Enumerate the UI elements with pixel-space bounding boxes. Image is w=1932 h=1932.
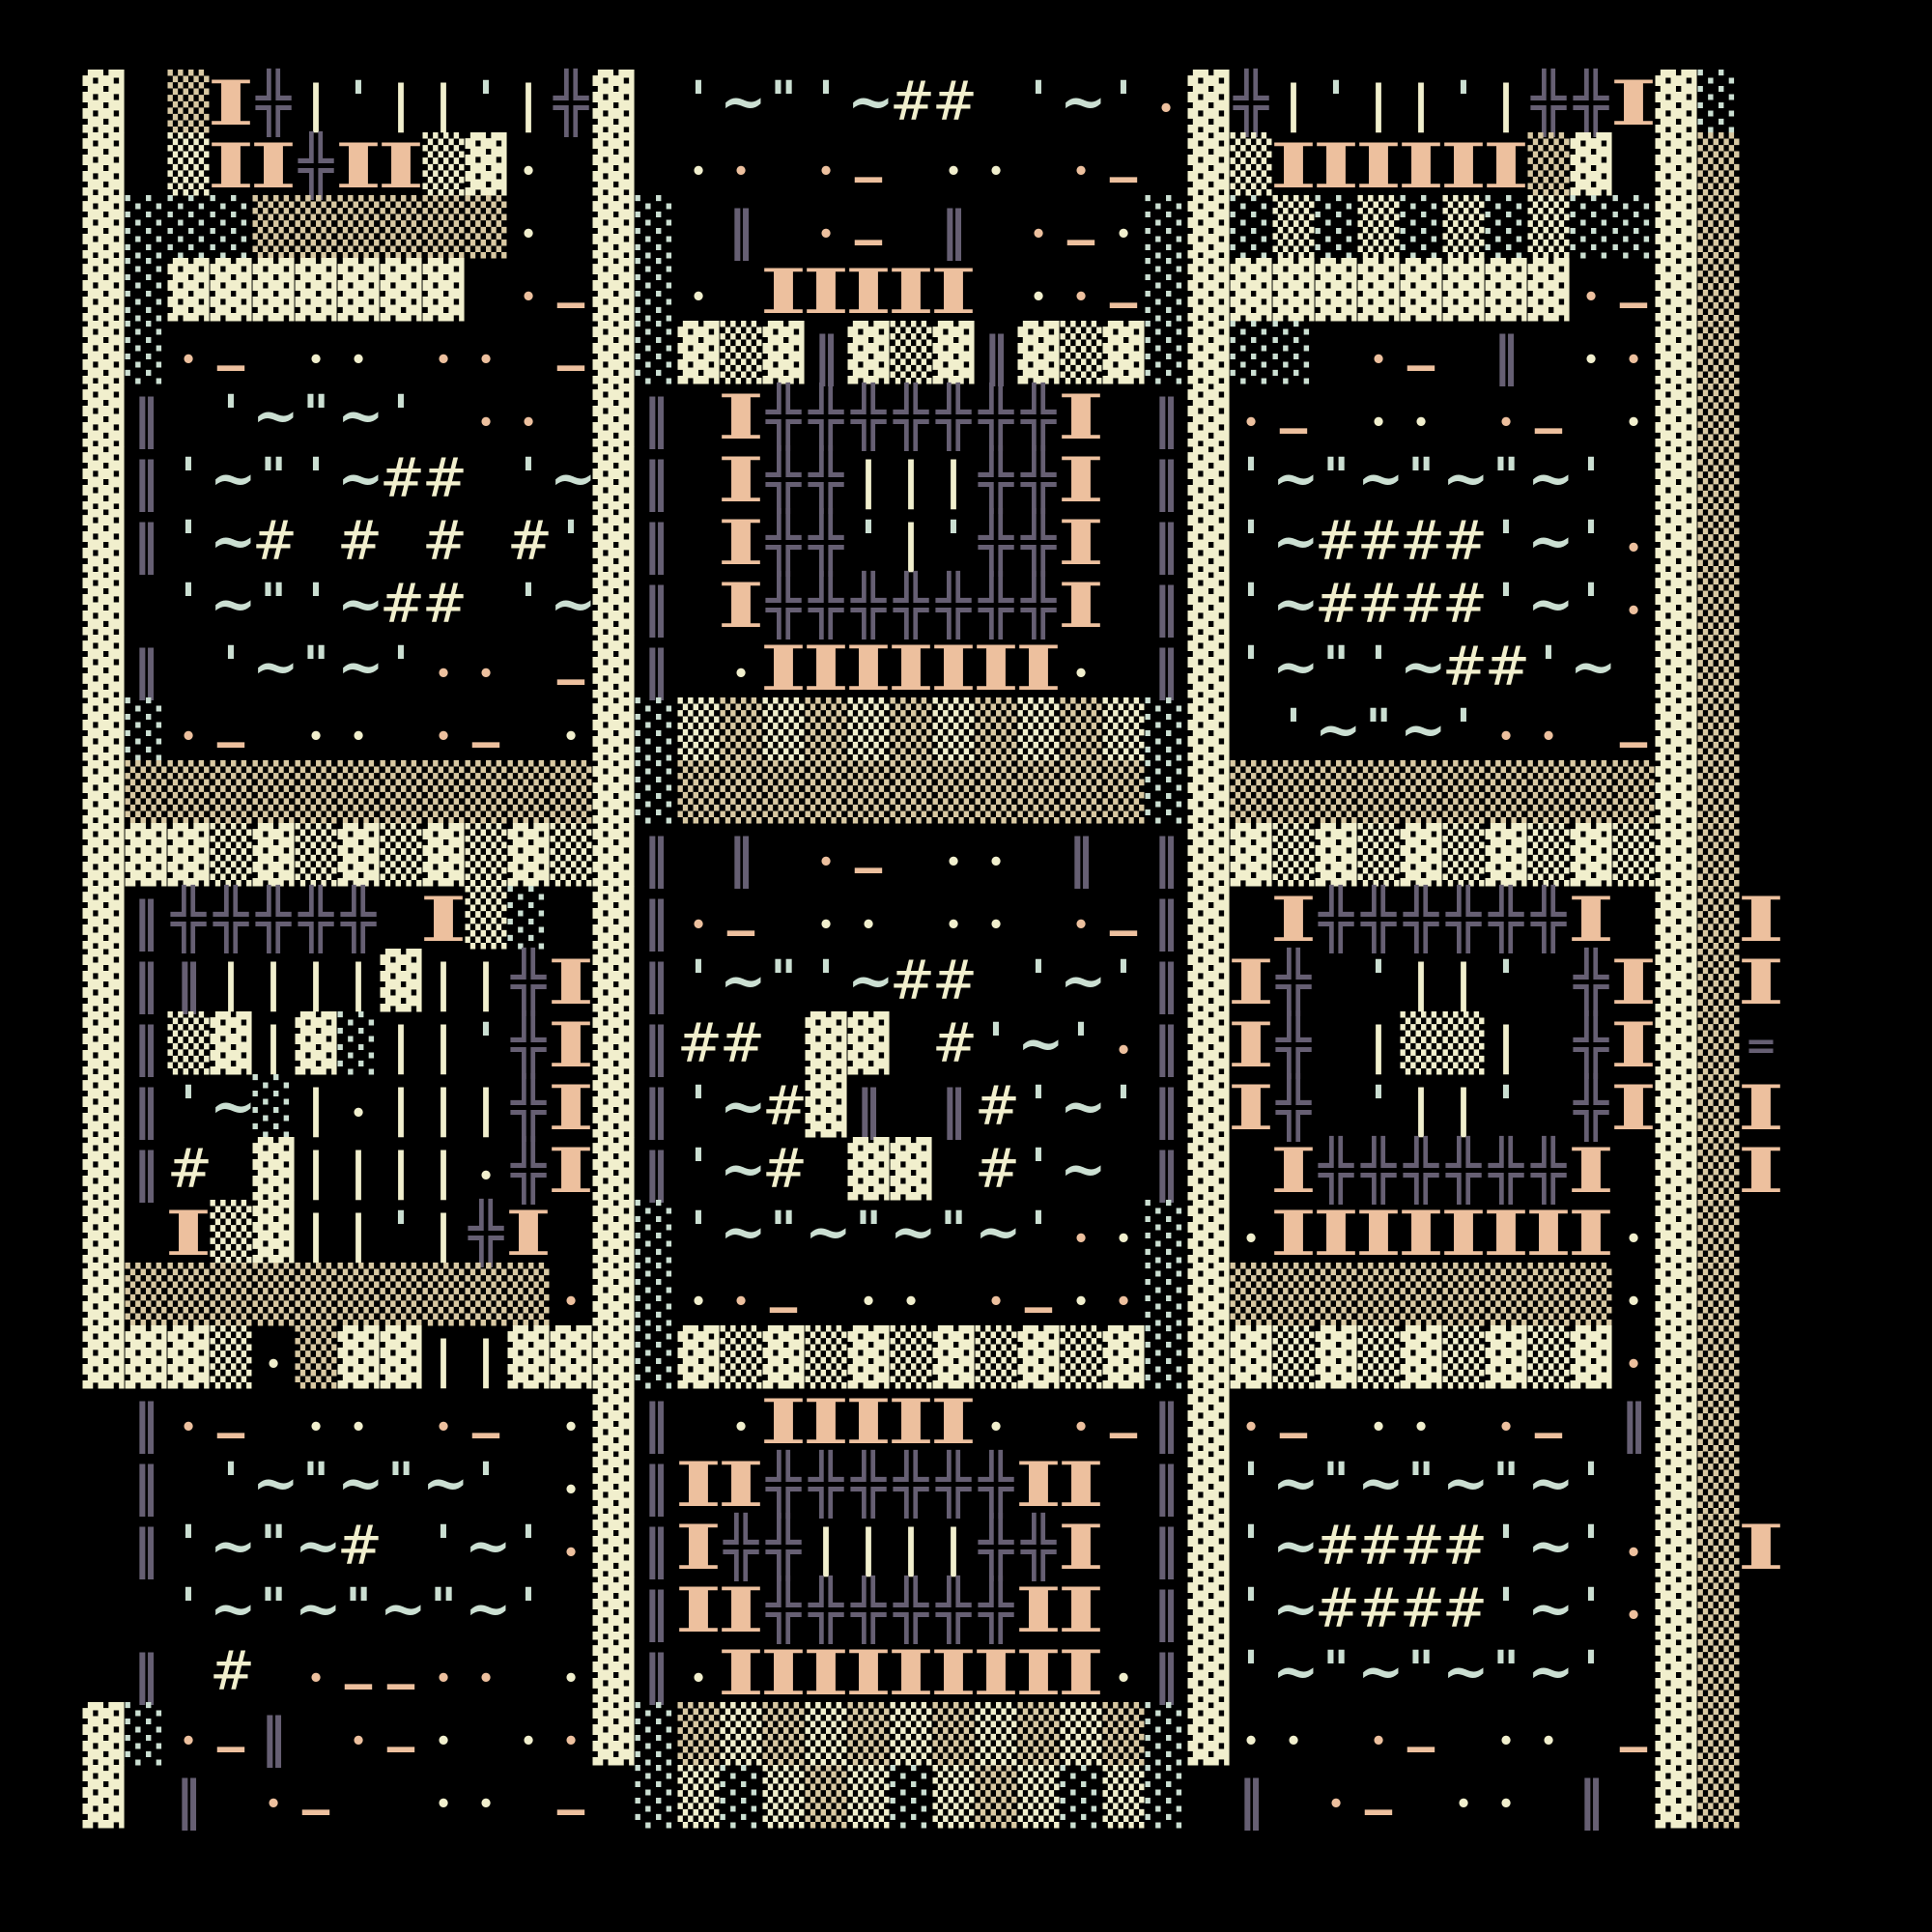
glyph-cell: ': [167, 575, 210, 638]
glyph-cell: ~: [1272, 1454, 1315, 1517]
glyph-cell: [1527, 1768, 1570, 1831]
glyph-cell: ": [762, 72, 805, 135]
glyph-cell: |: [252, 952, 295, 1014]
glyph-cell: ▓: [847, 1014, 890, 1077]
glyph-cell: ░: [1145, 324, 1187, 386]
glyph-cell: [82, 1517, 125, 1579]
glyph-cell: ░: [337, 1014, 380, 1077]
glyph-cell: ▒: [1357, 826, 1400, 889]
glyph-cell: [1740, 72, 1782, 135]
glyph-cell: ▓: [592, 1642, 635, 1705]
glyph-cell: ▒: [167, 763, 210, 826]
glyph-cell: [762, 1014, 805, 1077]
grid-row: ▓▒▒▒▒▒▒▒▒▒▒•▓░••▁•••▁••░▓▒▒▒▒▒▒▒▒▒•▓▒: [82, 1265, 1811, 1328]
glyph-cell: ▒: [1697, 575, 1740, 638]
glyph-cell: ": [1315, 1642, 1357, 1705]
glyph-cell: I: [494, 1203, 564, 1265]
glyph-cell: •: [1357, 1391, 1400, 1454]
glyph-cell: ‖: [1230, 1768, 1272, 1831]
glyph-cell: #: [507, 512, 550, 575]
glyph-cell: ▒: [720, 763, 762, 826]
glyph-cell: I: [154, 1203, 224, 1265]
glyph-cell: ': [847, 512, 890, 575]
glyph-cell: ╬: [252, 889, 295, 952]
glyph-cell: ▓: [1272, 261, 1315, 324]
glyph-cell: [1612, 1642, 1655, 1705]
glyph-cell: ╬: [847, 1454, 890, 1517]
glyph-cell: ▒: [1697, 198, 1740, 261]
glyph-cell: ▒: [1697, 449, 1740, 512]
glyph-cell: ▒: [507, 763, 550, 826]
glyph-cell: ▒: [295, 1328, 337, 1391]
glyph-cell: •: [1527, 1705, 1570, 1768]
glyph-cell: [1017, 889, 1060, 952]
glyph-cell: ~: [1272, 512, 1315, 575]
glyph-cell: •: [422, 1768, 465, 1831]
glyph-cell: ': [1570, 1579, 1612, 1642]
glyph-cell: •: [805, 135, 847, 198]
glyph-cell: ▒: [422, 763, 465, 826]
glyph-cell: •: [1060, 1265, 1102, 1328]
glyph-cell: ▁: [1612, 261, 1655, 324]
glyph-cell: #: [1442, 638, 1485, 700]
glyph-cell: ‖: [125, 889, 167, 952]
glyph-cell: •: [1612, 575, 1655, 638]
glyph-cell: ░: [252, 1077, 295, 1140]
glyph-cell: ‖: [1060, 826, 1102, 889]
glyph-cell: ~: [1272, 638, 1315, 700]
glyph-cell: ▁: [847, 135, 890, 198]
glyph-cell: ▓: [592, 700, 635, 763]
glyph-cell: ▓: [82, 700, 125, 763]
glyph-cell: ~: [550, 449, 592, 512]
glyph-cell: [1740, 1705, 1782, 1768]
glyph-cell: ▒: [1485, 763, 1527, 826]
glyph-cell: ▓: [167, 1328, 210, 1391]
glyph-cell: ▓: [167, 261, 210, 324]
glyph-cell: ~: [1527, 512, 1570, 575]
glyph-cell: =: [1740, 1014, 1782, 1077]
glyph-cell: I: [1259, 1140, 1329, 1203]
glyph-cell: [1740, 1768, 1782, 1831]
glyph-cell: [507, 1768, 550, 1831]
glyph-cell: ▒: [1017, 1705, 1060, 1768]
glyph-cell: ~: [1527, 575, 1570, 638]
glyph-cell: [932, 1140, 975, 1203]
glyph-cell: ▓: [1187, 324, 1230, 386]
glyph-cell: ▒: [1527, 1328, 1570, 1391]
glyph-cell: I: [1046, 1579, 1117, 1642]
glyph-cell: •: [1060, 135, 1102, 198]
glyph-cell: ▓: [1187, 1328, 1230, 1391]
glyph-cell: ▓: [1655, 1579, 1697, 1642]
glyph-cell: ▓: [82, 763, 125, 826]
glyph-cell: ▒: [720, 1328, 762, 1391]
glyph-cell: ▒: [1570, 1265, 1612, 1328]
glyph-cell: ▓: [592, 889, 635, 952]
glyph-cell: ': [1102, 952, 1145, 1014]
glyph-cell: I: [1599, 72, 1669, 135]
glyph-cell: I: [1599, 1077, 1669, 1140]
glyph-cell: |: [465, 952, 507, 1014]
glyph-cell: ~: [210, 1077, 252, 1140]
glyph-cell: ▓: [592, 826, 635, 889]
glyph-cell: ▓: [1655, 386, 1697, 449]
glyph-cell: ▒: [1697, 1391, 1740, 1454]
glyph-cell: ‖: [932, 1077, 975, 1140]
glyph-cell: ▒: [1612, 763, 1655, 826]
glyph-cell: I: [1004, 638, 1074, 700]
glyph-cell: ▁: [380, 1705, 422, 1768]
glyph-cell: ‖: [1145, 1077, 1187, 1140]
glyph-cell: [890, 826, 932, 889]
glyph-cell: ▓: [125, 1328, 167, 1391]
glyph-cell: ░: [1612, 198, 1655, 261]
glyph-cell: [1740, 1265, 1782, 1328]
glyph-cell: ░: [890, 1768, 932, 1831]
glyph-cell: •: [1485, 386, 1527, 449]
glyph-cell: [337, 1768, 380, 1831]
glyph-cell: [890, 1077, 932, 1140]
glyph-cell: •: [1400, 1391, 1442, 1454]
glyph-cell: ▒: [465, 198, 507, 261]
glyph-cell: I: [706, 386, 777, 449]
glyph-cell: •: [1485, 1391, 1527, 1454]
glyph-cell: ▓: [1655, 1454, 1697, 1517]
glyph-cell: ░: [125, 1705, 167, 1768]
glyph-cell: #: [1400, 575, 1442, 638]
glyph-cell: |: [210, 952, 252, 1014]
glyph-cell: ░: [1315, 198, 1357, 261]
glyph-cell: ╬: [762, 1517, 805, 1579]
glyph-cell: ~: [1272, 575, 1315, 638]
glyph-cell: I: [1556, 1203, 1627, 1265]
glyph-cell: [82, 1391, 125, 1454]
glyph-cell: ▓: [295, 1014, 337, 1077]
glyph-cell: ‖: [1145, 1391, 1187, 1454]
glyph-cell: ~: [550, 575, 592, 638]
glyph-cell: •: [975, 135, 1017, 198]
glyph-cell: |: [1400, 952, 1442, 1014]
glyph-cell: ': [507, 1517, 550, 1579]
glyph-cell: #: [422, 449, 465, 512]
glyph-cell: [1570, 1705, 1612, 1768]
glyph-cell: •: [1612, 386, 1655, 449]
glyph-cell: #: [975, 1077, 1017, 1140]
glyph-cell: •: [422, 700, 465, 763]
glyph-cell: •: [1230, 386, 1272, 449]
glyph-cell: ▒: [1697, 261, 1740, 324]
glyph-cell: •: [550, 1454, 592, 1517]
glyph-cell: ': [550, 512, 592, 575]
glyph-cell: •: [1485, 1705, 1527, 1768]
glyph-cell: ": [252, 1517, 295, 1579]
glyph-cell: ▓: [1655, 135, 1697, 198]
glyph-cell: [1315, 952, 1357, 1014]
glyph-cell: •: [1102, 1265, 1145, 1328]
glyph-cell: [125, 1579, 167, 1642]
glyph-cell: ░: [1230, 198, 1272, 261]
glyph-cell: #: [422, 575, 465, 638]
glyph-cell: ‖: [1145, 1517, 1187, 1579]
glyph-cell: ╬: [847, 1579, 890, 1642]
glyph-cell: ▓: [1187, 135, 1230, 198]
glyph-cell: ~: [1272, 1642, 1315, 1705]
glyph-cell: ~: [1442, 449, 1485, 512]
grid-row: ▓░▓▓▓▓▓▓▓•▁▓░•IIIII••▁░▓▓▓▓▓▓▓▓▓•▁▓▒: [82, 261, 1811, 324]
glyph-cell: [1740, 1203, 1782, 1265]
glyph-cell: ▒: [1697, 1642, 1740, 1705]
glyph-cell: ░: [720, 1768, 762, 1831]
glyph-cell: •: [295, 1642, 337, 1705]
glyph-cell: [1315, 1014, 1357, 1077]
glyph-cell: ▒: [1357, 198, 1400, 261]
glyph-cell: [507, 1391, 550, 1454]
glyph-cell: ▒: [422, 1265, 465, 1328]
glyph-cell: ': [1230, 638, 1272, 700]
glyph-cell: ▒: [252, 1265, 295, 1328]
glyph-cell: ': [337, 72, 380, 135]
glyph-cell: ▓: [1655, 198, 1697, 261]
glyph-cell: ': [1230, 575, 1272, 638]
glyph-cell: •: [422, 1705, 465, 1768]
glyph-cell: ▒: [762, 1768, 805, 1831]
glyph-cell: ▒: [1442, 1328, 1485, 1391]
glyph-cell: #: [677, 1014, 720, 1077]
glyph-cell: ▓: [592, 1517, 635, 1579]
glyph-cell: ▒: [1060, 324, 1102, 386]
glyph-cell: I: [1046, 386, 1117, 449]
glyph-cell: ▒: [932, 1705, 975, 1768]
glyph-cell: ░: [635, 1328, 677, 1391]
glyph-cell: ~: [1570, 638, 1612, 700]
glyph-cell: ': [167, 1517, 210, 1579]
glyph-cell: ▒: [210, 1328, 252, 1391]
glyph-cell: ▒: [1442, 1265, 1485, 1328]
glyph-cell: ▁: [337, 1642, 380, 1705]
glyph-cell: ": [847, 1203, 890, 1265]
glyph-cell: |: [337, 952, 380, 1014]
glyph-cell: ~: [380, 1579, 422, 1642]
grid-row: ▓░•▁‖•▁•••▓░▒▒▒▒▒▒▒▒▒▒▒░▓•••▁••▁▓▒: [82, 1705, 1811, 1768]
glyph-cell: ▁: [550, 638, 592, 700]
glyph-cell: ░: [635, 1705, 677, 1768]
glyph-cell: ‖: [252, 1705, 295, 1768]
glyph-cell: ▁: [1400, 1705, 1442, 1768]
glyph-cell: [380, 700, 422, 763]
glyph-cell: ░: [1400, 198, 1442, 261]
glyph-cell: #: [1400, 1517, 1442, 1579]
glyph-cell: ▒: [1102, 763, 1145, 826]
glyph-cell: •: [932, 889, 975, 952]
glyph-cell: ▒: [295, 1265, 337, 1328]
glyph-cell: #: [337, 1517, 380, 1579]
glyph-cell: ‖: [125, 1140, 167, 1203]
glyph-cell: [82, 1454, 125, 1517]
glyph-cell: •: [1485, 700, 1527, 763]
glyph-cell: #: [167, 1140, 210, 1203]
glyph-cell: I: [1726, 1077, 1797, 1140]
glyph-cell: #: [1400, 512, 1442, 575]
glyph-cell: •: [1315, 1768, 1357, 1831]
glyph-cell: |: [932, 1517, 975, 1579]
glyph-cell: ": [337, 1579, 380, 1642]
glyph-cell: ░: [635, 1768, 677, 1831]
glyph-cell: ▒: [805, 1768, 847, 1831]
glyph-cell: ▓: [82, 261, 125, 324]
glyph-cell: ~: [1272, 1579, 1315, 1642]
glyph-cell: ▓: [337, 1328, 380, 1391]
glyph-cell: ": [295, 638, 337, 700]
glyph-cell: ▓: [592, 1454, 635, 1517]
glyph-cell: |: [380, 1077, 422, 1140]
glyph-cell: ▓: [1187, 1203, 1230, 1265]
glyph-cell: [1145, 135, 1187, 198]
glyph-cell: ▓: [82, 324, 125, 386]
grid-row: ▓░•▁•••▁•▓░▒▒▒▒▒▒▒▒▒▒▒░▓'~"~'••▁▓▒: [82, 700, 1811, 763]
glyph-cell: ▓: [592, 1265, 635, 1328]
glyph-cell: ╬: [932, 1454, 975, 1517]
glyph-cell: I: [536, 1077, 607, 1140]
glyph-cell: ╬: [337, 889, 380, 952]
glyph-cell: ▓: [1655, 1391, 1697, 1454]
glyph-cell: ▓: [1485, 1328, 1527, 1391]
glyph-cell: [805, 1140, 847, 1203]
glyph-cell: ': [167, 1077, 210, 1140]
glyph-cell: [550, 135, 592, 198]
glyph-cell: [1102, 1140, 1145, 1203]
glyph-cell: [890, 889, 932, 952]
glyph-cell: #: [932, 952, 975, 1014]
glyph-cell: [1315, 1077, 1357, 1140]
glyph-cell: •: [1612, 512, 1655, 575]
glyph-cell: ": [1315, 638, 1357, 700]
glyph-cell: ╬: [890, 1454, 932, 1517]
glyph-cell: ▒: [1272, 1328, 1315, 1391]
glyph-cell: I: [196, 72, 267, 135]
glyph-cell: [1740, 135, 1782, 198]
glyph-cell: #: [1357, 512, 1400, 575]
glyph-cell: ▒: [805, 1328, 847, 1391]
glyph-cell: ▒: [1102, 1768, 1145, 1831]
glyph-cell: [550, 889, 592, 952]
glyph-cell: ▓: [1187, 449, 1230, 512]
glyph-cell: ╬: [975, 575, 1017, 638]
glyph-cell: #: [380, 449, 422, 512]
glyph-cell: |: [1400, 1077, 1442, 1140]
glyph-cell: ▓: [932, 324, 975, 386]
glyph-cell: [890, 198, 932, 261]
glyph-cell: [1017, 826, 1060, 889]
glyph-cell: [1612, 638, 1655, 700]
glyph-cell: ▓: [1655, 575, 1697, 638]
glyph-cell: |: [295, 952, 337, 1014]
glyph-cell: ▒: [1570, 763, 1612, 826]
glyph-cell: ▁: [1357, 1768, 1400, 1831]
grid-row: ▓‖╬╬╬╬╬I▒░▓‖•▁•••••▁‖▓I╬╬╬╬╬╬I▓▒I: [82, 889, 1811, 952]
glyph-cell: ▒: [1357, 1328, 1400, 1391]
glyph-cell: ▒: [295, 826, 337, 889]
glyph-cell: [762, 889, 805, 952]
ascii-art-grid: ▓▒I╬|'||'|╬▓'~"'~##'~'•▓╬|'||'|╬╬I▓░▓▒II…: [82, 72, 1811, 1840]
glyph-cell: ▒: [847, 1768, 890, 1831]
glyph-cell: ': [1017, 72, 1060, 135]
glyph-cell: ‖: [167, 952, 210, 1014]
glyph-cell: •: [252, 1328, 295, 1391]
glyph-cell: •: [295, 700, 337, 763]
glyph-cell: ‖: [1145, 826, 1187, 889]
glyph-cell: ▒: [1697, 763, 1740, 826]
glyph-cell: ~: [720, 1140, 762, 1203]
glyph-cell: ~: [1527, 1454, 1570, 1517]
glyph-cell: ▓: [1102, 1328, 1145, 1391]
glyph-cell: ╬: [890, 1579, 932, 1642]
glyph-cell: |: [422, 1203, 465, 1265]
glyph-cell: |: [1400, 72, 1442, 135]
glyph-cell: [465, 261, 507, 324]
glyph-cell: [677, 826, 720, 889]
glyph-cell: |: [890, 1517, 932, 1579]
glyph-cell: I: [1556, 1140, 1627, 1203]
glyph-cell: ': [1527, 638, 1570, 700]
glyph-cell: ▓: [380, 261, 422, 324]
glyph-cell: ▓: [1485, 261, 1527, 324]
glyph-cell: ▓: [1187, 1705, 1230, 1768]
glyph-cell: •: [1060, 889, 1102, 952]
glyph-cell: ▒: [762, 1705, 805, 1768]
glyph-cell: ‖: [635, 952, 677, 1014]
glyph-cell: •: [677, 1265, 720, 1328]
glyph-cell: ": [1485, 1642, 1527, 1705]
glyph-cell: ╬: [1442, 889, 1485, 952]
glyph-cell: ‖: [635, 386, 677, 449]
glyph-cell: [1570, 700, 1612, 763]
glyph-cell: •: [1612, 1265, 1655, 1328]
glyph-cell: ╬: [1485, 889, 1527, 952]
glyph-cell: •: [422, 324, 465, 386]
glyph-cell: ░: [1145, 763, 1187, 826]
glyph-cell: [1740, 198, 1782, 261]
glyph-cell: •: [465, 1140, 507, 1203]
glyph-cell: [1442, 1391, 1485, 1454]
glyph-cell: [507, 324, 550, 386]
glyph-cell: ▓: [592, 512, 635, 575]
glyph-cell: ▒: [167, 1265, 210, 1328]
glyph-cell: ▒: [380, 826, 422, 889]
glyph-cell: ▓: [1357, 261, 1400, 324]
glyph-cell: ‖: [1145, 638, 1187, 700]
glyph-cell: •: [847, 889, 890, 952]
glyph-cell: [295, 1705, 337, 1768]
glyph-cell: ': [1485, 575, 1527, 638]
glyph-cell: •: [337, 1705, 380, 1768]
glyph-cell: |: [847, 449, 890, 512]
glyph-cell: ▁: [1102, 889, 1145, 952]
glyph-cell: ~: [1527, 1579, 1570, 1642]
glyph-cell: ~: [1357, 1454, 1400, 1517]
glyph-cell: [1740, 700, 1782, 763]
glyph-cell: ‖: [125, 952, 167, 1014]
glyph-cell: [1740, 1579, 1782, 1642]
glyph-cell: ▒: [890, 700, 932, 763]
glyph-cell: •: [975, 826, 1017, 889]
glyph-cell: ~: [720, 1203, 762, 1265]
glyph-cell: •: [677, 889, 720, 952]
glyph-cell: ': [1017, 1140, 1060, 1203]
glyph-cell: ": [422, 1579, 465, 1642]
glyph-cell: ░: [1697, 72, 1740, 135]
glyph-cell: ‖: [1145, 386, 1187, 449]
